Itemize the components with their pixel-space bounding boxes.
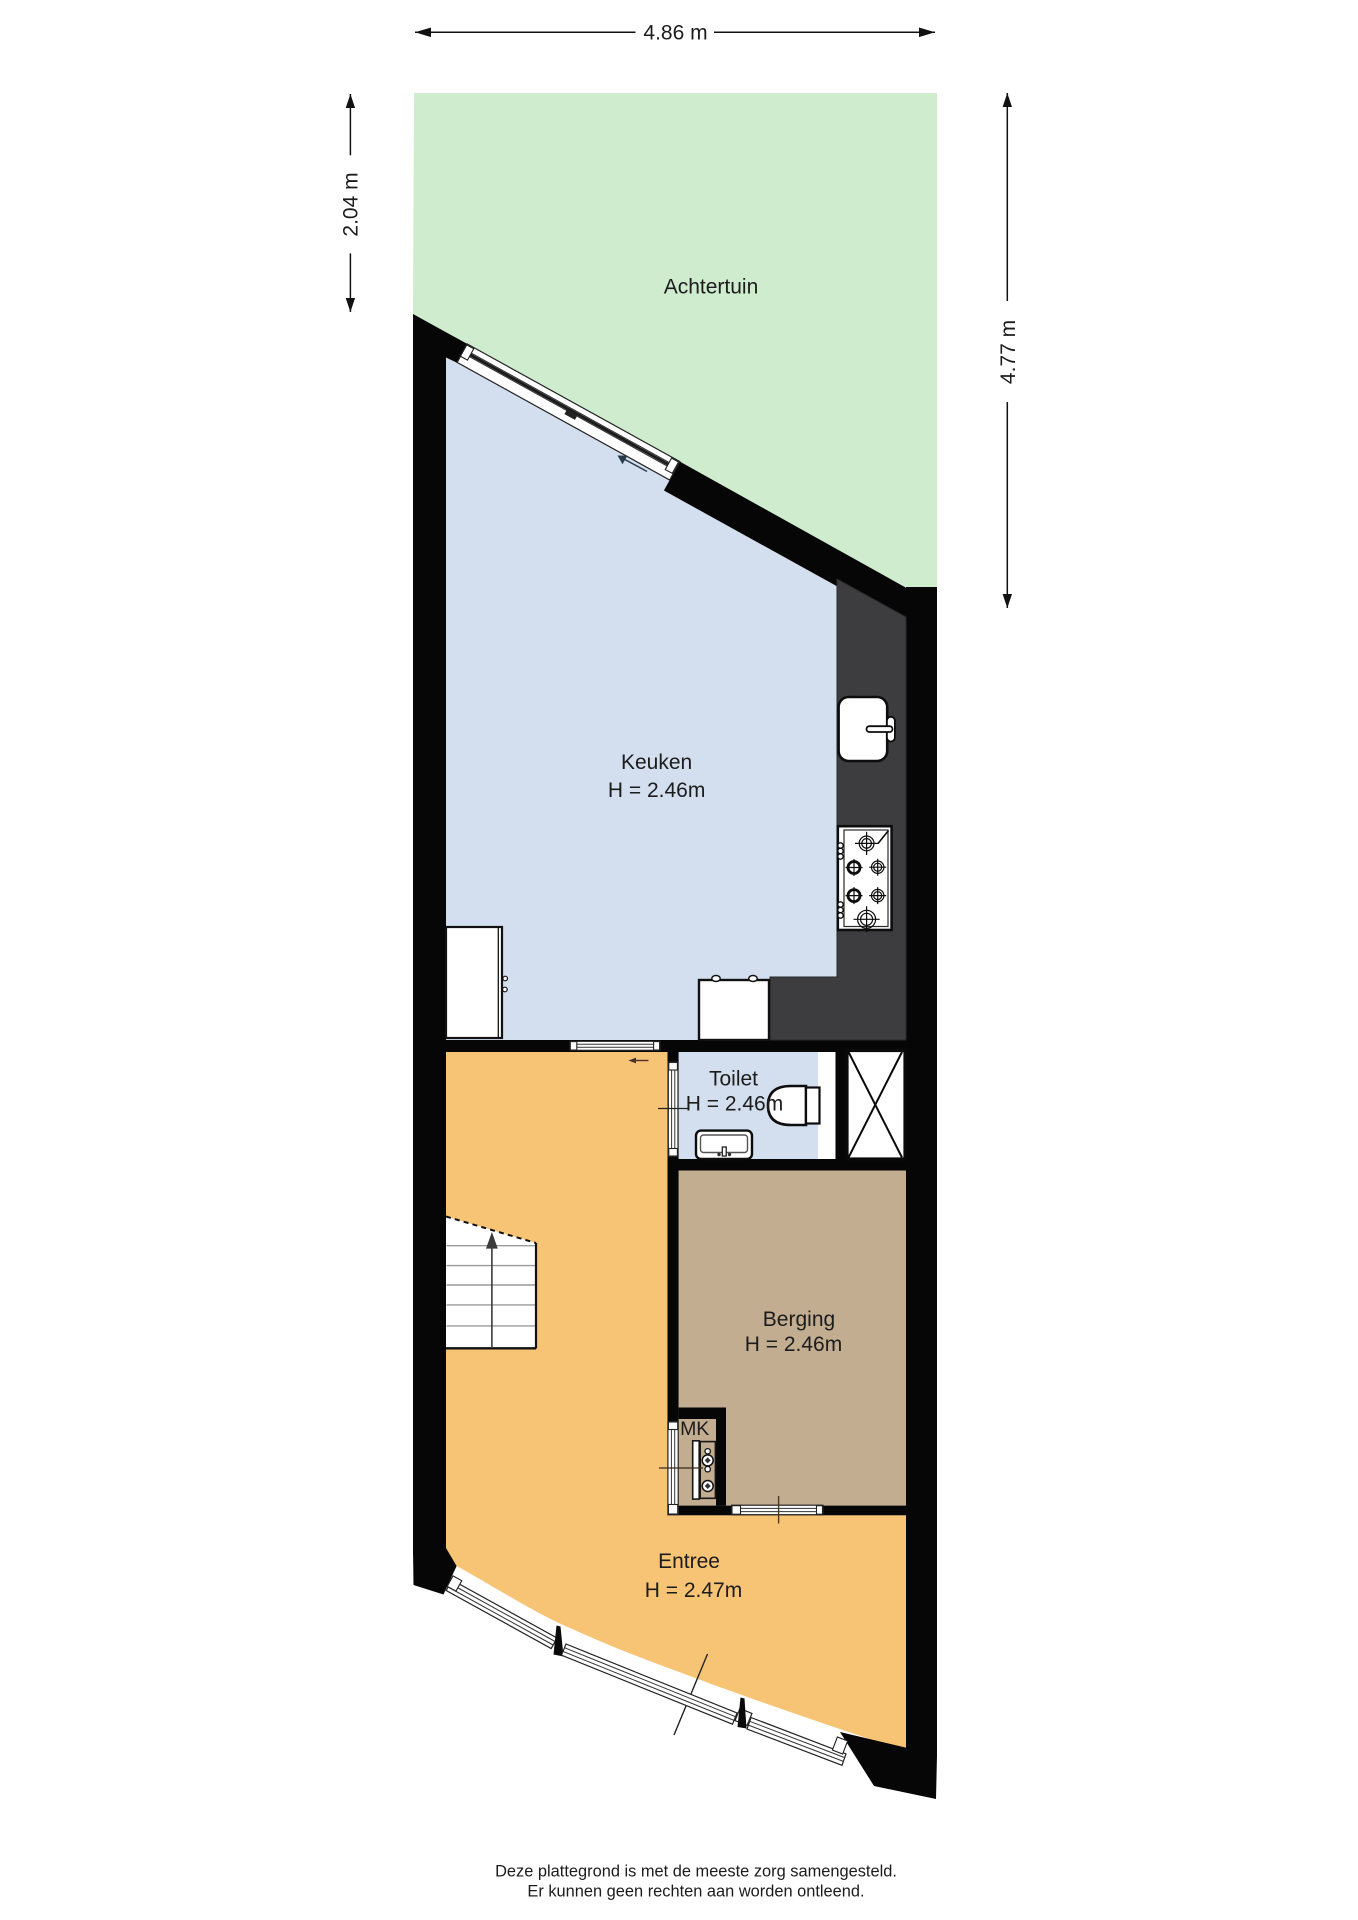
svg-text:Toilet: Toilet	[709, 1068, 758, 1091]
svg-text:H = 2.46m: H = 2.46m	[745, 1333, 842, 1356]
svg-text:4.77 m: 4.77 m	[997, 320, 1020, 384]
svg-text:2.04 m: 2.04 m	[340, 172, 363, 236]
svg-text:MK: MK	[680, 1418, 709, 1440]
svg-text:4.86 m: 4.86 m	[643, 21, 707, 44]
svg-text:H = 2.47m: H = 2.47m	[645, 1579, 742, 1602]
svg-text:Deze plattegrond is met de mee: Deze plattegrond is met de meeste zorg s…	[495, 1862, 897, 1880]
svg-text:H = 2.46m: H = 2.46m	[608, 779, 705, 802]
svg-text:Achtertuin: Achtertuin	[664, 276, 759, 299]
svg-text:H = 2.46m: H = 2.46m	[686, 1092, 783, 1115]
svg-text:Er kunnen geen rechten aan wor: Er kunnen geen rechten aan worden ontlee…	[527, 1883, 864, 1901]
svg-text:Berging: Berging	[763, 1308, 835, 1331]
svg-text:Keuken: Keuken	[621, 751, 692, 774]
svg-text:Entree: Entree	[658, 1550, 720, 1573]
